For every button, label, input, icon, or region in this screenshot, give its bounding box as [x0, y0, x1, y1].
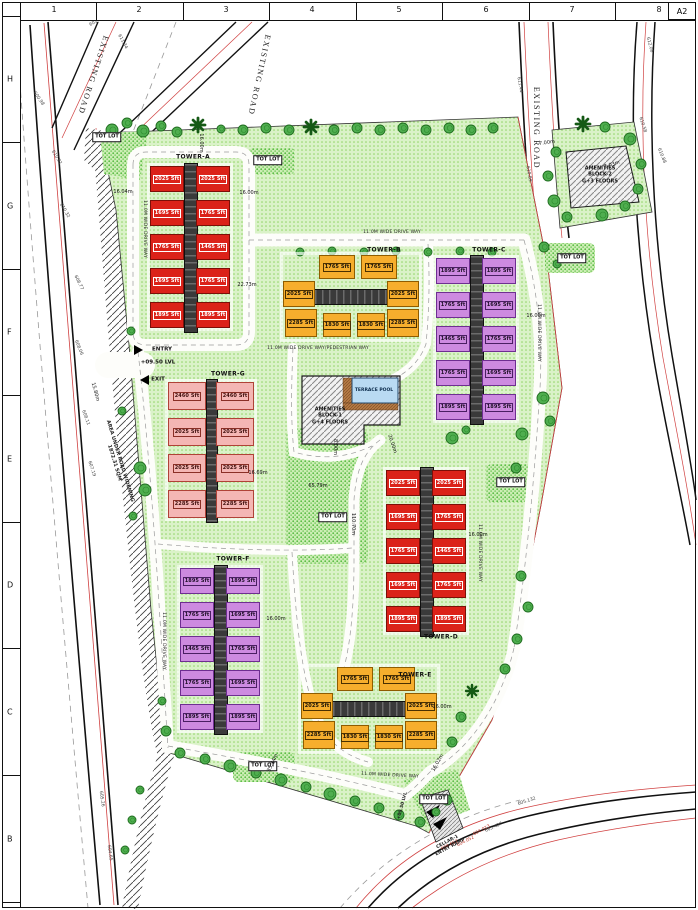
unit-block: 1695 Sft	[482, 360, 516, 386]
unit-area-label: 1765 Sft	[389, 547, 418, 556]
ruler-letter: C	[7, 708, 13, 717]
unit-area-label: 1830 Sft	[357, 321, 386, 330]
unit-area-label: 1765 Sft	[485, 335, 514, 344]
unit-area-label: 2025 Sft	[173, 464, 202, 473]
unit-area-label: 1465 Sft	[199, 243, 228, 252]
ruler-tick	[356, 2, 357, 20]
unit-block: 1765 Sft	[150, 234, 184, 260]
unit-area-label: 1895 Sft	[229, 577, 258, 586]
unit-area-label: 2460 Sft	[221, 392, 250, 401]
unit-block: 2025 Sft	[168, 418, 206, 446]
unit-area-label: 1895 Sft	[183, 713, 212, 722]
unit-block: 1895 Sft	[386, 606, 420, 632]
unit-block: 1895 Sft	[150, 302, 184, 328]
tower-g: 2460 Sft2460 Sft2025 Sft2025 Sft2025 Sft…	[168, 382, 254, 518]
unit-block: 1895 Sft	[432, 606, 466, 632]
unit-block: 2025 Sft	[150, 166, 184, 192]
unit-block: 1895 Sft	[226, 568, 260, 594]
ruler-tick	[529, 2, 530, 20]
unit-block: 1695 Sft	[386, 504, 420, 530]
unit-block: 2285 Sft	[303, 721, 335, 749]
unit-area-label: 2285 Sft	[221, 500, 250, 509]
unit-area-label: 1695 Sft	[389, 581, 418, 590]
unit-block: 1830 Sft	[375, 725, 403, 749]
unit-area-label: 1830 Sft	[375, 733, 404, 742]
ruler-tick	[2, 269, 20, 270]
ruler-tick	[615, 2, 616, 20]
unit-area-label: 1895 Sft	[229, 713, 258, 722]
unit-block: 2285 Sft	[285, 309, 317, 337]
ruler-letter: G	[7, 202, 13, 211]
unit-block: 1765 Sft	[379, 667, 415, 691]
unit-area-label: 1895 Sft	[153, 311, 182, 320]
unit-block: 2025 Sft	[405, 693, 437, 719]
unit-area-label: 2285 Sft	[389, 319, 418, 328]
unit-block: 1465 Sft	[196, 234, 230, 260]
unit-block: 1465 Sft	[432, 538, 466, 564]
unit-area-label: 1830 Sft	[323, 321, 352, 330]
unit-area-label: 1465 Sft	[183, 645, 212, 654]
unit-block: 1695 Sft	[150, 268, 184, 294]
unit-area-label: 1765 Sft	[229, 645, 258, 654]
unit-area-label: 1765 Sft	[199, 209, 228, 218]
ruler-tick	[269, 2, 270, 20]
unit-area-label: 1765 Sft	[439, 369, 468, 378]
unit-block: 1765 Sft	[337, 667, 373, 691]
unit-area-label: 2285 Sft	[305, 731, 334, 740]
unit-block: 1765 Sft	[436, 360, 470, 386]
unit-block: 1895 Sft	[226, 704, 260, 730]
unit-block: 1465 Sft	[180, 636, 214, 662]
ruler-letter: E	[7, 455, 12, 464]
ruler-number: 8	[656, 5, 661, 14]
unit-block: 1830 Sft	[341, 725, 369, 749]
ruler-tick	[442, 2, 443, 20]
unit-block: 1895 Sft	[180, 568, 214, 594]
unit-block: 1830 Sft	[323, 313, 351, 337]
ruler-tick	[2, 142, 20, 143]
unit-area-label: 2025 Sft	[435, 479, 464, 488]
unit-area-label: 1895 Sft	[439, 403, 468, 412]
unit-area-label: 2025 Sft	[389, 479, 418, 488]
unit-block: 1765 Sft	[432, 504, 466, 530]
unit-block: 1765 Sft	[319, 255, 355, 279]
unit-area-label: 1765 Sft	[183, 611, 212, 620]
unit-area-label: 1895 Sft	[389, 615, 418, 624]
unit-block: 2025 Sft	[301, 693, 333, 719]
ruler-tick	[2, 775, 20, 776]
unit-block: 2025 Sft	[196, 166, 230, 192]
unit-block: 1765 Sft	[436, 292, 470, 318]
unit-area-label: 1695 Sft	[229, 679, 258, 688]
unit-area-label: 2285 Sft	[287, 319, 316, 328]
unit-area-label: 1895 Sft	[435, 615, 464, 624]
tower-c: 1895 Sft1895 Sft1765 Sft1695 Sft1465 Sft…	[436, 258, 516, 420]
unit-block: 1765 Sft	[432, 572, 466, 598]
ruler-tick	[2, 902, 20, 903]
towers-layer: 2025 Sft2025 Sft1695 Sft1765 Sft1765 Sft…	[0, 0, 698, 910]
unit-area-label: 2285 Sft	[407, 731, 436, 740]
unit-area-label: 1695 Sft	[485, 301, 514, 310]
ruler-letter: H	[7, 75, 13, 84]
unit-block: 1765 Sft	[196, 200, 230, 226]
unit-area-label: 1830 Sft	[341, 733, 370, 742]
unit-block: 1765 Sft	[226, 636, 260, 662]
unit-block: 1895 Sft	[196, 302, 230, 328]
sheet-number: A2	[668, 2, 696, 20]
ruler-letter: B	[7, 835, 13, 844]
unit-area-label: 2285 Sft	[173, 500, 202, 509]
unit-area-label: 1765 Sft	[439, 301, 468, 310]
unit-area-label: 1695 Sft	[389, 513, 418, 522]
unit-block: 2285 Sft	[405, 721, 437, 749]
site-plan-canvas: 2025 Sft2025 Sft1695 Sft1765 Sft1765 Sft…	[0, 0, 698, 910]
unit-block: 2025 Sft	[216, 418, 254, 446]
unit-block: 2025 Sft	[432, 470, 466, 496]
unit-block: 1765 Sft	[361, 255, 397, 279]
unit-area-label: 2025 Sft	[389, 290, 418, 299]
ruler-tick	[2, 522, 20, 523]
unit-area-label: 1765 Sft	[323, 263, 352, 272]
ruler-left: HGFEDCB	[2, 2, 21, 908]
ruler-number: 4	[309, 5, 314, 14]
unit-block: 1765 Sft	[180, 602, 214, 628]
ruler-letter: F	[7, 328, 12, 337]
unit-block: 1765 Sft	[196, 268, 230, 294]
unit-area-label: 2025 Sft	[199, 175, 228, 184]
unit-block: 1765 Sft	[180, 670, 214, 696]
unit-block: 1895 Sft	[436, 258, 470, 284]
unit-area-label: 1695 Sft	[485, 369, 514, 378]
unit-area-label: 1695 Sft	[153, 209, 182, 218]
ruler-number: 6	[483, 5, 488, 14]
unit-area-label: 2025 Sft	[221, 428, 250, 437]
unit-area-label: 1695 Sft	[153, 277, 182, 286]
ruler-letter: D	[7, 581, 13, 590]
unit-area-label: 1765 Sft	[365, 263, 394, 272]
unit-area-label: 2025 Sft	[407, 702, 436, 711]
tower-b: 1765 Sft1765 Sft2025 Sft2025 Sft2285 Sft…	[283, 255, 419, 339]
unit-block: 1465 Sft	[436, 326, 470, 352]
unit-block: 1695 Sft	[150, 200, 184, 226]
unit-block: 2460 Sft	[216, 382, 254, 410]
unit-area-label: 1765 Sft	[383, 675, 412, 684]
unit-block: 2025 Sft	[386, 470, 420, 496]
unit-block: 1695 Sft	[226, 602, 260, 628]
unit-area-label: 2025 Sft	[153, 175, 182, 184]
tower-f: 1895 Sft1895 Sft1765 Sft1695 Sft1465 Sft…	[180, 568, 260, 730]
unit-block: 1695 Sft	[226, 670, 260, 696]
unit-block: 1695 Sft	[482, 292, 516, 318]
ruler-top: 12345678	[2, 2, 696, 21]
unit-block: 2460 Sft	[168, 382, 206, 410]
unit-block: 1895 Sft	[482, 258, 516, 284]
unit-block: 2025 Sft	[168, 454, 206, 482]
ruler-tick	[183, 2, 184, 20]
ruler-tick	[2, 648, 20, 649]
unit-area-label: 1695 Sft	[229, 611, 258, 620]
unit-area-label: 1465 Sft	[435, 547, 464, 556]
unit-area-label: 1465 Sft	[439, 335, 468, 344]
unit-area-label: 2460 Sft	[173, 392, 202, 401]
unit-block: 1830 Sft	[357, 313, 385, 337]
ruler-tick	[2, 395, 20, 396]
unit-area-label: 1895 Sft	[485, 403, 514, 412]
ruler-number: 1	[51, 5, 56, 14]
ruler-tick	[2, 16, 20, 17]
unit-block: 1895 Sft	[482, 394, 516, 420]
unit-block: 2285 Sft	[387, 309, 419, 337]
unit-area-label: 2025 Sft	[173, 428, 202, 437]
ruler-number: 3	[223, 5, 228, 14]
unit-block: 1695 Sft	[386, 572, 420, 598]
unit-block: 1765 Sft	[482, 326, 516, 352]
unit-area-label: 1765 Sft	[341, 675, 370, 684]
unit-area-label: 1765 Sft	[183, 679, 212, 688]
ruler-number: 7	[569, 5, 574, 14]
tower-d: 2025 Sft2025 Sft1695 Sft1765 Sft1765 Sft…	[386, 470, 466, 632]
unit-area-label: 1895 Sft	[199, 311, 228, 320]
unit-block: 2025 Sft	[216, 454, 254, 482]
tower-e: 1765 Sft1765 Sft2025 Sft2025 Sft2285 Sft…	[301, 667, 437, 751]
unit-area-label: 1765 Sft	[199, 277, 228, 286]
unit-block: 2285 Sft	[216, 490, 254, 518]
unit-block: 1895 Sft	[436, 394, 470, 420]
unit-area-label: 1765 Sft	[435, 513, 464, 522]
tower-a: 2025 Sft2025 Sft1695 Sft1765 Sft1765 Sft…	[150, 166, 230, 328]
ruler-number: 2	[136, 5, 141, 14]
unit-block: 2025 Sft	[387, 281, 419, 307]
unit-area-label: 2025 Sft	[221, 464, 250, 473]
ruler-number: 5	[396, 5, 401, 14]
unit-area-label: 2025 Sft	[303, 702, 332, 711]
unit-block: 1765 Sft	[386, 538, 420, 564]
unit-area-label: 1895 Sft	[183, 577, 212, 586]
unit-area-label: 1765 Sft	[153, 243, 182, 252]
ruler-tick	[96, 2, 97, 20]
unit-block: 2285 Sft	[168, 490, 206, 518]
unit-block: 1895 Sft	[180, 704, 214, 730]
unit-area-label: 1895 Sft	[485, 267, 514, 276]
unit-area-label: 1765 Sft	[435, 581, 464, 590]
unit-block: 2025 Sft	[283, 281, 315, 307]
unit-area-label: 1895 Sft	[439, 267, 468, 276]
unit-area-label: 2025 Sft	[285, 290, 314, 299]
